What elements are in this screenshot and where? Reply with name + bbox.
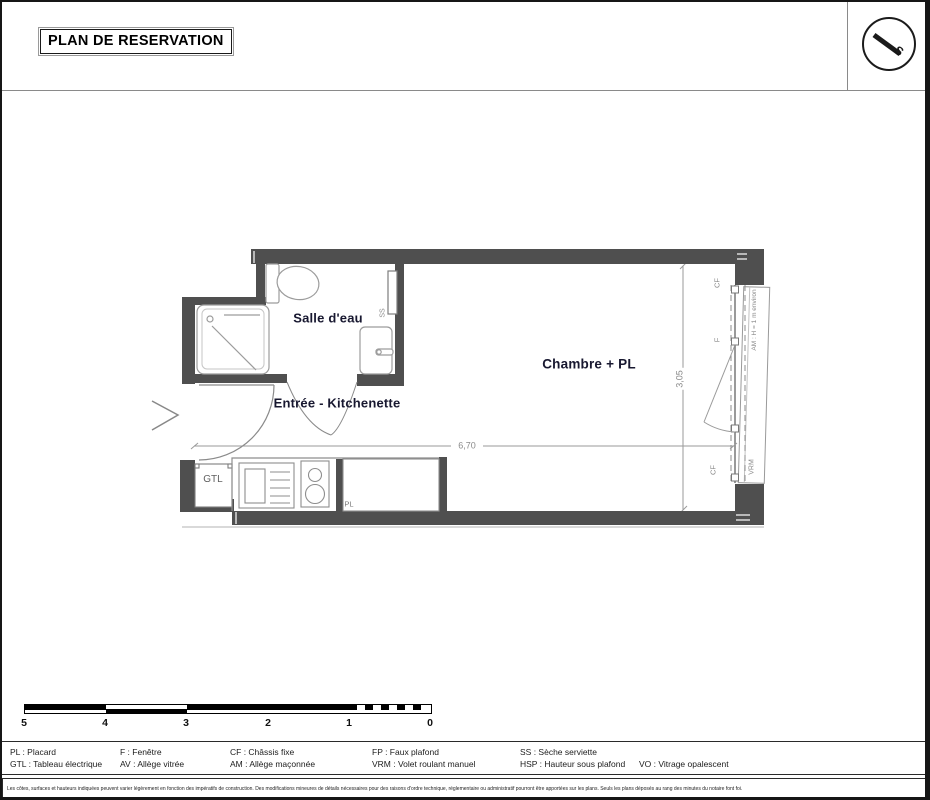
shower (197, 305, 269, 374)
annotation-cf-bottom: CF (709, 465, 717, 475)
dimension-depth: 3,05 (676, 368, 685, 390)
placard-area (343, 459, 439, 511)
sink-basin (245, 469, 265, 503)
legend-item-ss: SS : Sèche serviette (520, 747, 597, 757)
scale-label-4: 4 (102, 717, 108, 729)
disclaimer-text: Les côtes, surfaces et hauteurs indiquée… (7, 786, 742, 792)
entrance-arrow-icon (152, 401, 178, 430)
annotation-gtl: GTL (203, 475, 222, 485)
legend-item-vo: VO : Vitrage opalescent (639, 759, 729, 769)
cooktop (301, 461, 329, 507)
legend-item-av: AV : Allège vitrée (120, 759, 184, 769)
cooktop-burner-small (309, 469, 322, 482)
wall-top (251, 249, 764, 264)
floor-plan-drawing (2, 2, 930, 742)
annotation-ss: SS (380, 308, 387, 317)
scale-bar: 5 4 3 2 1 0 (24, 704, 430, 732)
towel-dryer (388, 271, 397, 314)
gtl-box (195, 464, 232, 507)
scale-label-0: 0 (427, 717, 433, 729)
annotation-pl: PL (344, 500, 353, 508)
cooktop-burner-large (306, 485, 325, 504)
legend-item-pl: PL : Placard (10, 747, 56, 757)
shower-drain (207, 316, 213, 322)
legend-item-gtl: GTL : Tableau électrique (10, 759, 102, 769)
annotation-vrm: VRM (749, 459, 756, 475)
legend-item-hsp: HSP : Hauteur sous plafond (520, 759, 625, 769)
kitchen-sink-unit (239, 463, 294, 508)
floor-plan-page: PLAN DE RESERVATION S (0, 0, 930, 800)
room-label-bathroom: Salle d'eau (293, 312, 363, 325)
scale-label-1: 1 (346, 717, 352, 729)
room-label-entry-kitchenette: Entrée - Kitchenette (274, 397, 401, 410)
entrance-door-swing (199, 385, 274, 460)
wall-shower-left (182, 297, 195, 384)
legend-item-vrm: VRM : Volet roulant manuel (372, 759, 475, 769)
scale-label-2: 2 (265, 717, 271, 729)
legend-item-cf: CF : Châssis fixe (230, 747, 294, 757)
legend-item-f: F : Fenêtre (120, 747, 162, 757)
annotation-cf-top: CF (713, 278, 721, 288)
scale-bar-track (24, 704, 432, 714)
window-sash (704, 285, 739, 483)
wall-right-top-column (735, 264, 764, 285)
legend-item-am: AM : Allège maçonnée (230, 759, 315, 769)
wall-bottom (232, 511, 764, 525)
window-swing-arc (704, 422, 735, 432)
wall-bathroom-bottom-left (182, 374, 287, 383)
disclaimer: Les côtes, surfaces et hauteurs indiquée… (2, 778, 928, 799)
wall-placard-right (439, 457, 447, 525)
window-swing-line (704, 345, 735, 422)
dimension-length: 6,70 (455, 442, 479, 451)
washbasin (360, 327, 393, 374)
toilet-bowl (275, 263, 322, 302)
toilet (266, 263, 321, 303)
legend: PL : Placard GTL : Tableau électrique F … (2, 741, 928, 775)
scale-label-3: 3 (183, 717, 189, 729)
annotation-f: F (713, 338, 721, 343)
room-label-bedroom: Chambre + PL (542, 357, 636, 371)
legend-item-fp: FP : Faux plafond (372, 747, 439, 757)
wall-kitchen-divider (336, 459, 343, 511)
wall-bathroom-left (256, 249, 265, 305)
entrance-door (199, 385, 274, 460)
annotation-am-note: AM : H = 1 m environ (752, 289, 759, 350)
scale-label-5: 5 (21, 717, 27, 729)
